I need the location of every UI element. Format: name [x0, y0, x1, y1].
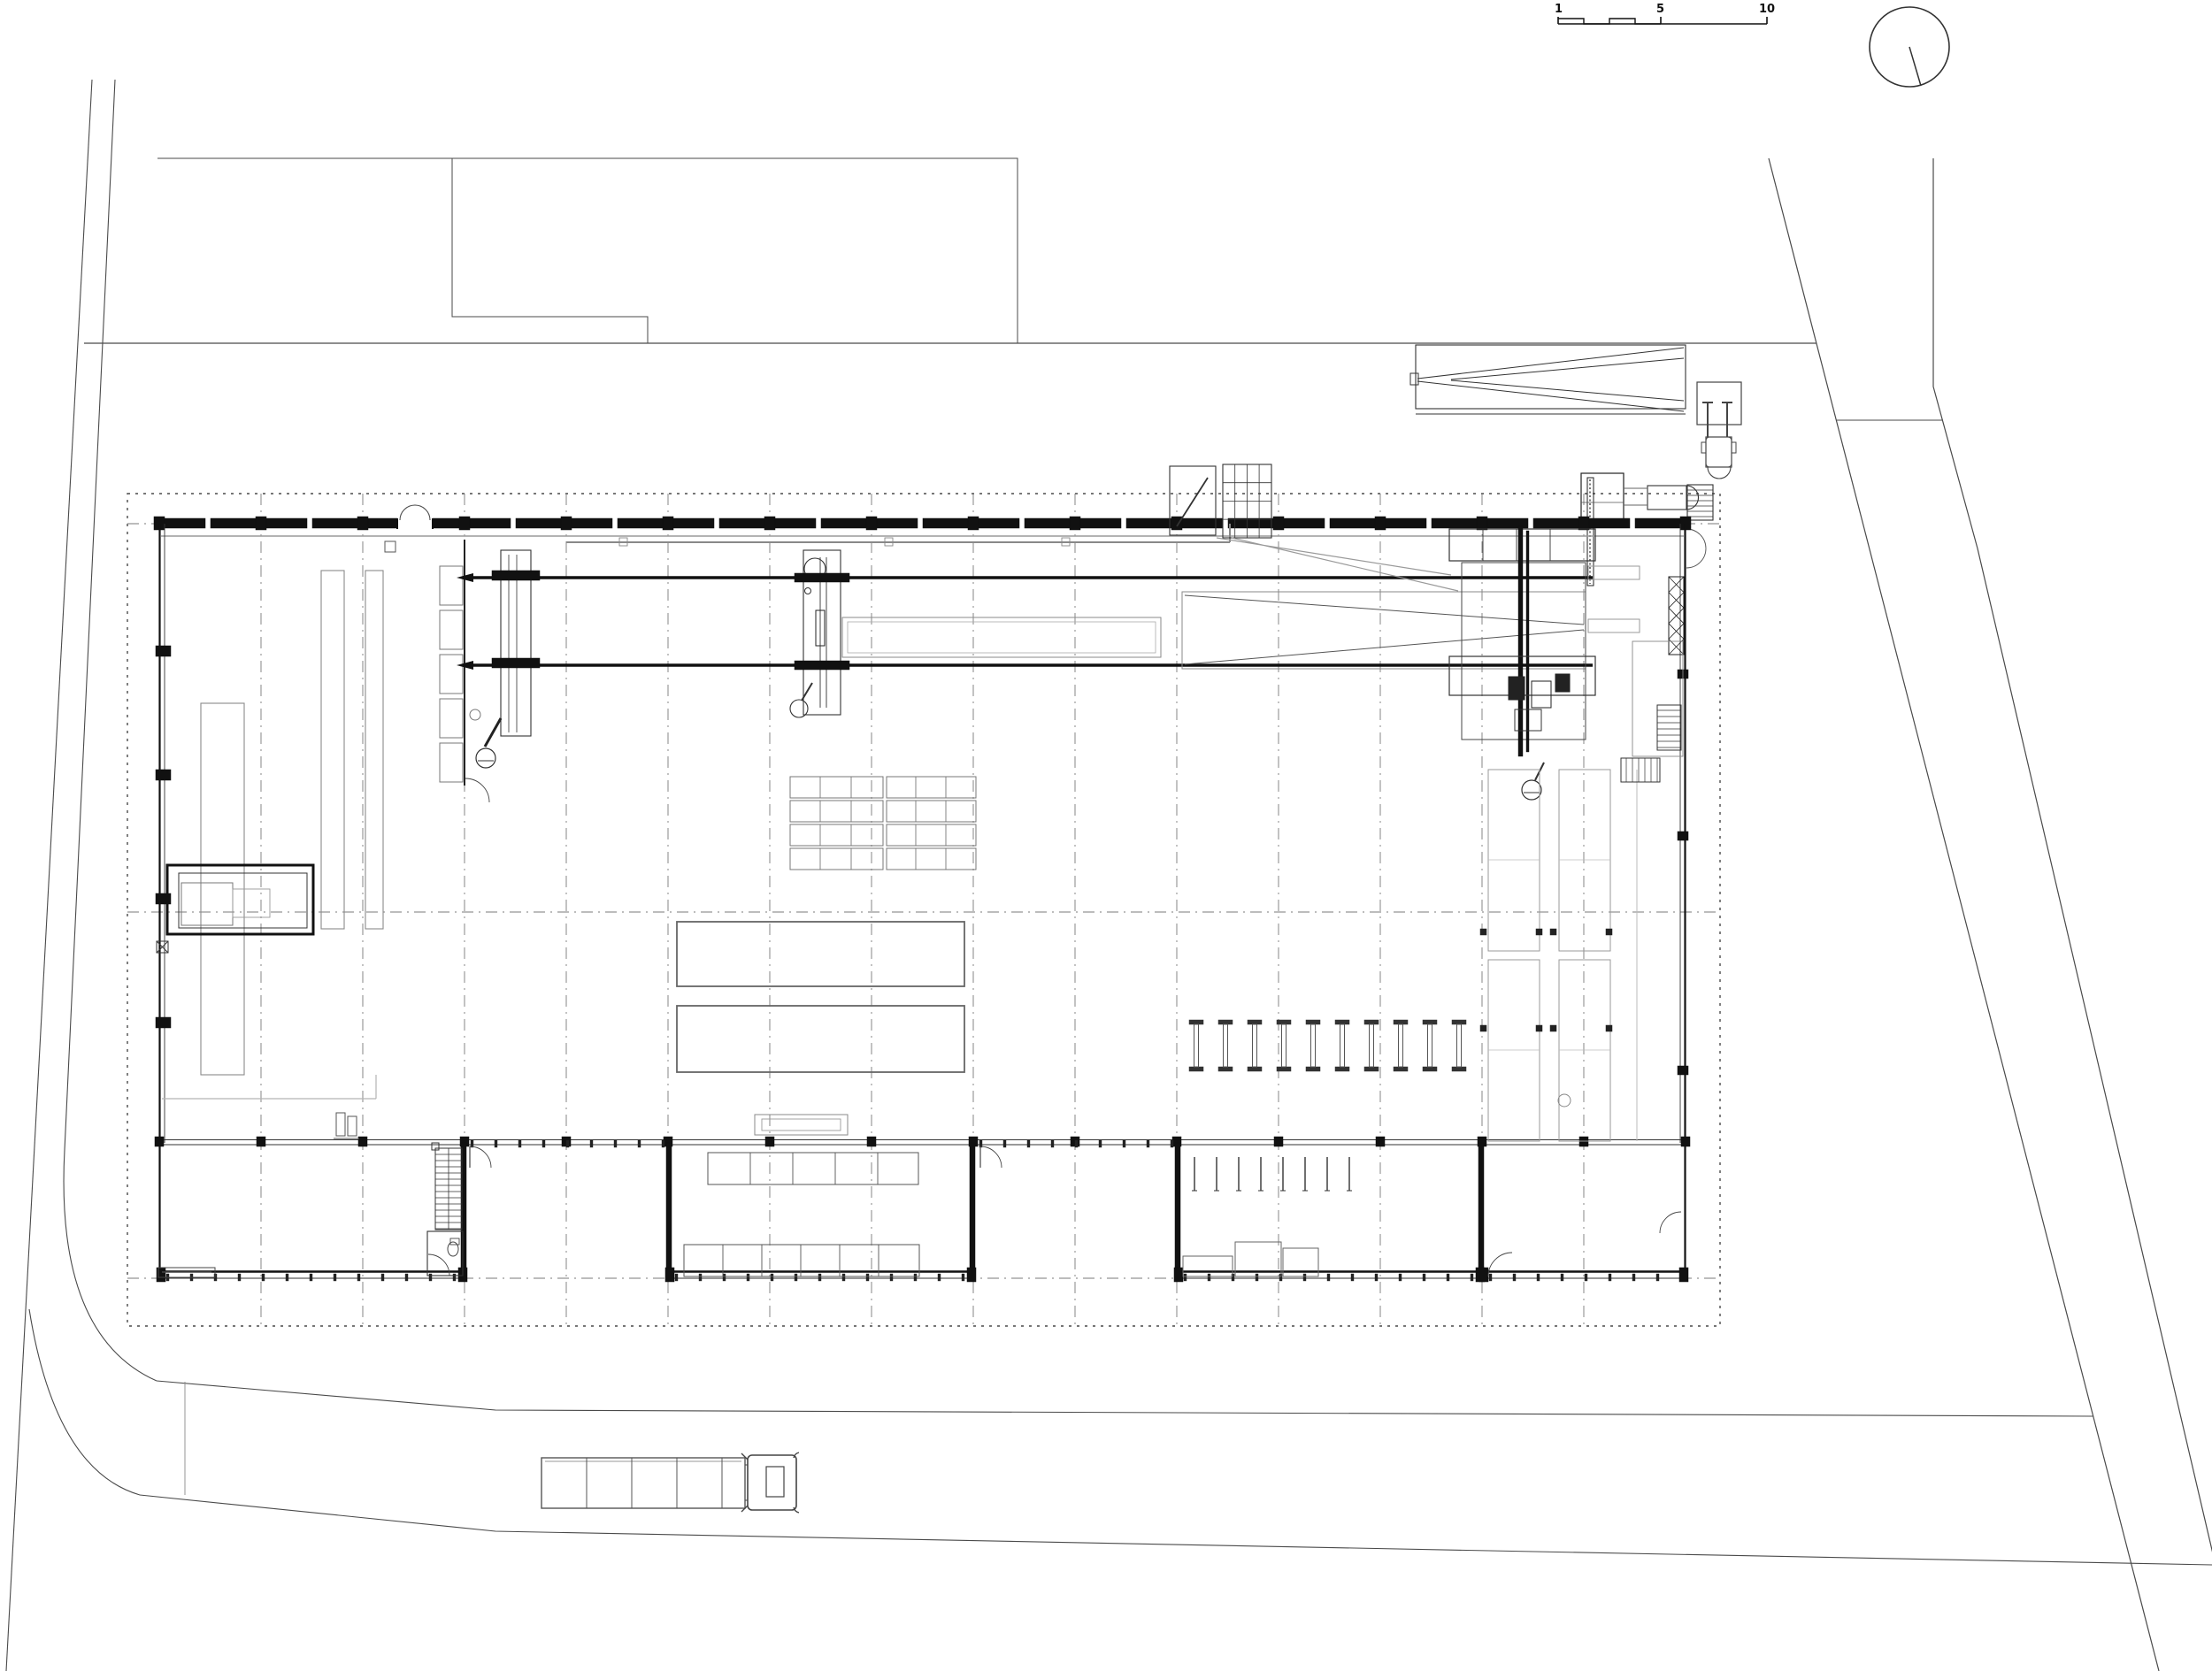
floor-plan-canvas: 1510	[0, 0, 2212, 1671]
log-deck-wedge	[1182, 592, 1586, 669]
se-storage	[1480, 770, 1637, 1141]
pallet-tables	[790, 777, 976, 870]
left-wing	[158, 1143, 463, 1277]
scale-label-5: 5	[1656, 3, 1664, 16]
site-context	[6, 80, 2212, 1671]
machine-a	[476, 550, 540, 768]
site-plan-drawing: 1510	[0, 0, 2212, 1671]
crane-rails	[457, 573, 1593, 670]
machine-c-sawline	[1170, 464, 1640, 800]
truck	[541, 1453, 799, 1513]
scale-label-1: 1	[1555, 3, 1563, 16]
building-shell	[154, 505, 1691, 1281]
trestle-row	[1189, 1020, 1466, 1071]
ne-equipment	[1581, 382, 1741, 586]
ne-interior-stairs	[1621, 641, 1683, 782]
machine-b	[790, 550, 849, 717]
nw-racking	[201, 566, 480, 1075]
hall-interior	[162, 464, 1683, 1141]
south-wings	[157, 1143, 1688, 1282]
middle-wing	[684, 1153, 919, 1276]
forklift	[1697, 382, 1741, 479]
exterior-stair	[1687, 485, 1713, 520]
scale-label-10: 10	[1759, 3, 1775, 16]
ramp-enclosure	[1410, 345, 1686, 414]
scale-bar: 1510	[1555, 3, 1775, 24]
north-facade	[154, 505, 1691, 531]
south-wall	[155, 1137, 1690, 1147]
north-arrow	[1870, 7, 1949, 87]
right-wing	[1183, 1157, 1352, 1276]
